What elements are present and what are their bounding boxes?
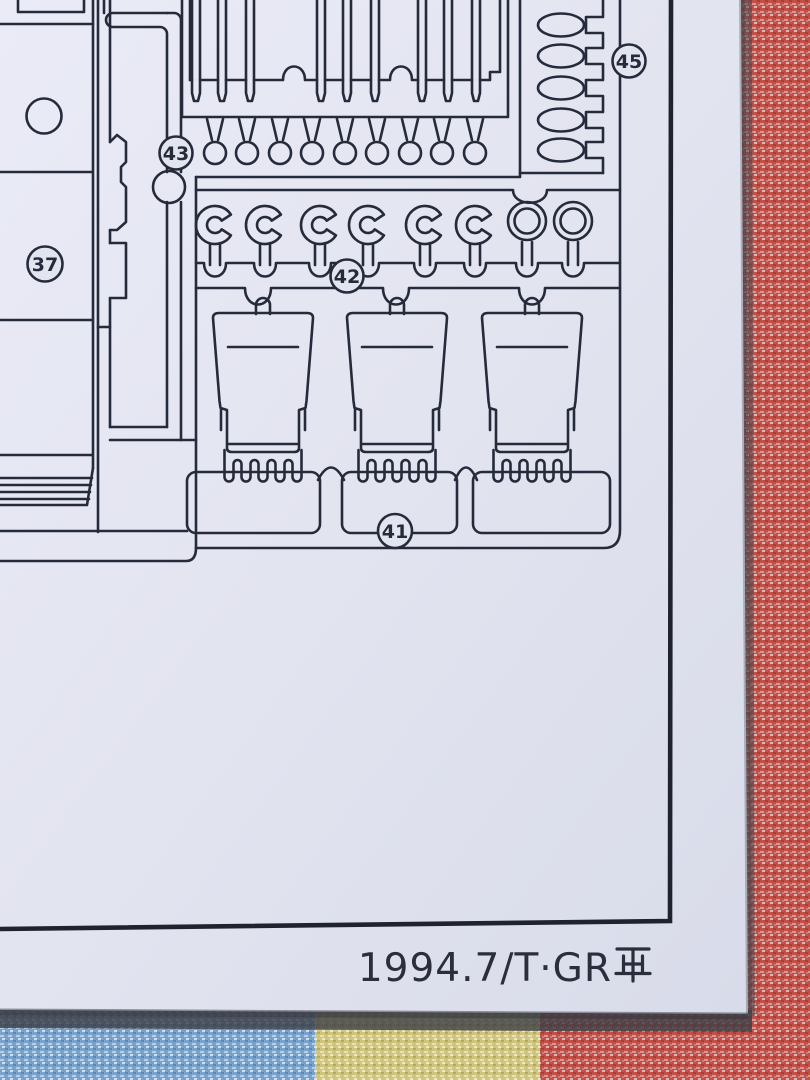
part-label-41: 41 xyxy=(382,521,408,543)
footer-date-code: 1994.7/T·GR xyxy=(358,946,650,991)
paper-sheet xyxy=(0,0,748,1014)
photo-of-instruction-sheet: 37 43 42 45 41 1994.7/T·GR xyxy=(0,0,810,1080)
part-label-45: 45 xyxy=(616,51,642,73)
date-code-text: 1994.7/T·GR xyxy=(358,946,612,991)
part-label-37: 37 xyxy=(32,254,58,276)
scene-canvas: 37 43 42 45 41 1994.7/T·GR xyxy=(0,0,810,1080)
part-label-43: 43 xyxy=(163,143,189,165)
part-label-42: 42 xyxy=(334,266,360,288)
paper-bottom-edge xyxy=(0,1012,748,1016)
